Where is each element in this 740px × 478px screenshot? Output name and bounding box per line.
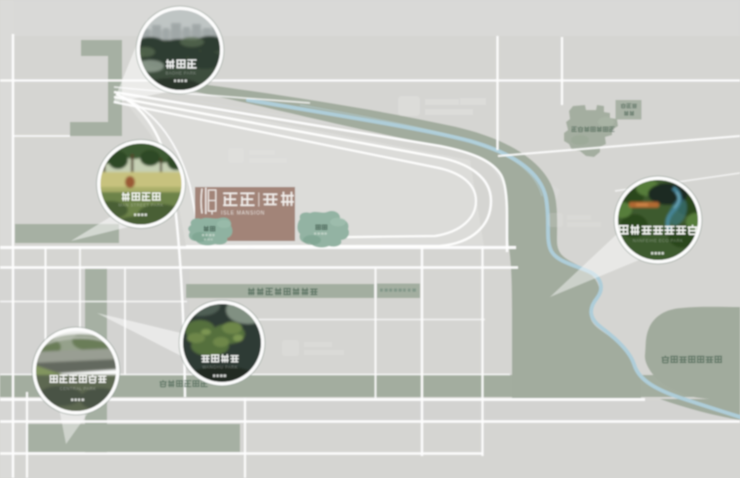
- svg-text:NANFEIHE ECO PARK: NANFEIHE ECO PARK: [633, 238, 683, 243]
- svg-text:MAN STREET PARK: MAN STREET PARK: [118, 203, 163, 208]
- svg-text:ISLE MANSION: ISLE MANSION: [221, 211, 265, 217]
- svg-text:CENTRAL PARK: CENTRAL PARK: [60, 386, 96, 391]
- svg-text:BAOHE PARK: BAOHE PARK: [166, 71, 197, 76]
- svg-text:WANGHU PARK: WANGHU PARK: [202, 365, 238, 370]
